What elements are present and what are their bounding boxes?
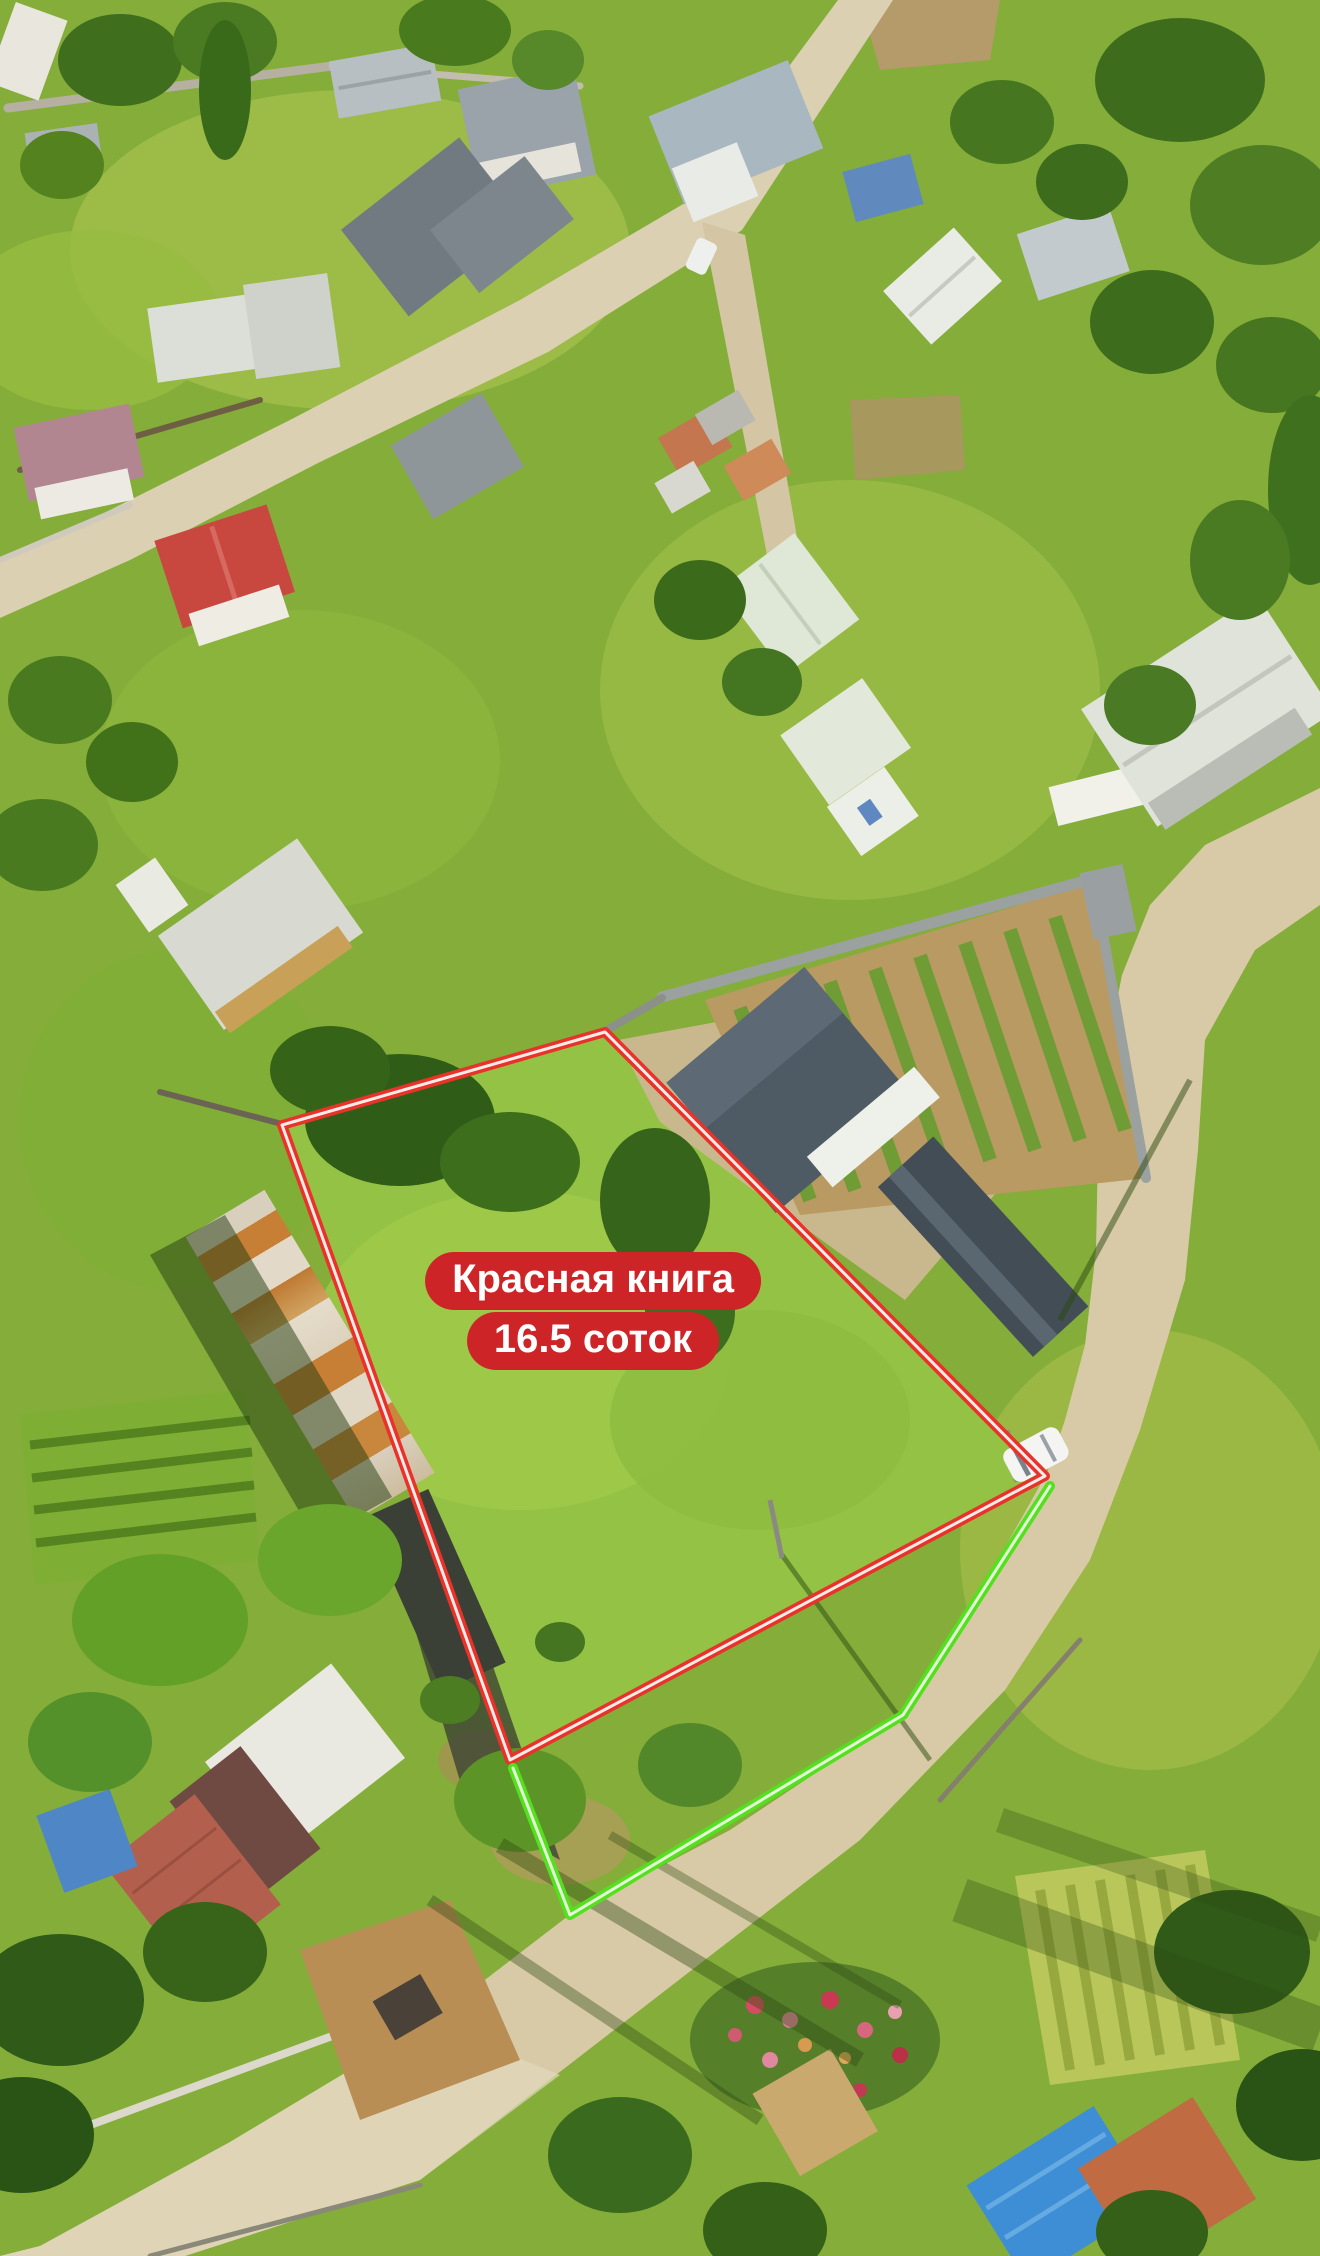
- plot-title-label: Красная книга: [425, 1252, 761, 1310]
- plot-area-label: 16.5 соток: [467, 1312, 719, 1370]
- plot-info-badge: Красная книга 16.5 соток: [425, 1252, 761, 1370]
- aerial-photo: Красная книга 16.5 соток: [0, 0, 1320, 2256]
- aerial-photo-canvas: [0, 0, 1320, 2256]
